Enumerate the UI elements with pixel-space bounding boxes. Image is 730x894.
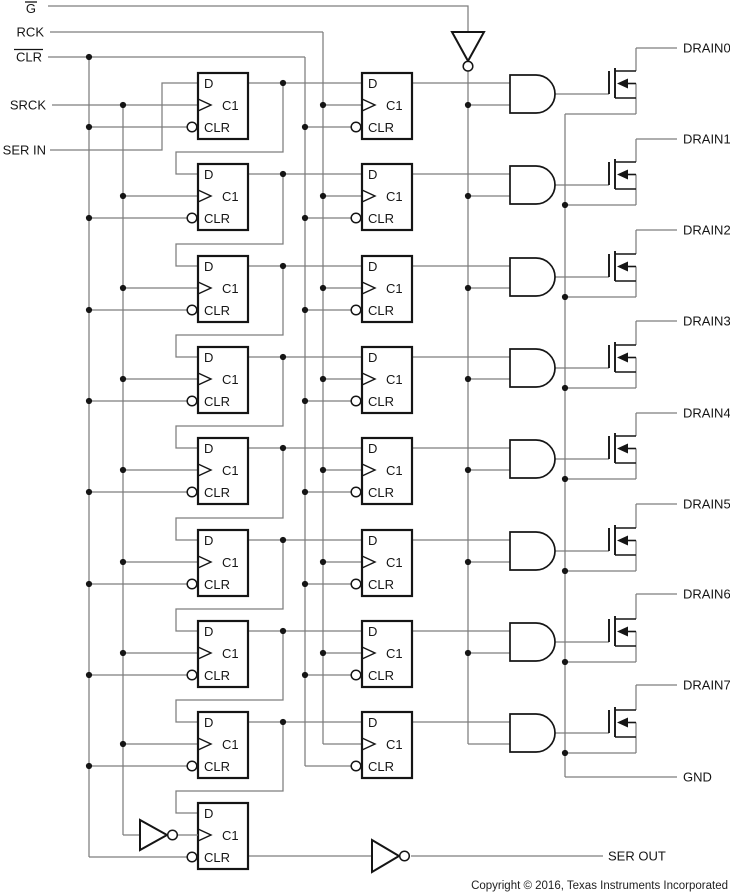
and-gate-4 [510,440,555,478]
junction-dot [120,559,126,565]
junction-dot [86,124,92,130]
clr-bubble-icon [351,487,361,497]
clr-bubble-icon [187,122,197,132]
clr-bubble-icon [187,852,197,862]
g-inverter-bubble-icon [463,61,473,71]
junction-dot [320,650,326,656]
ff-d-label: D [368,76,377,91]
ff-d-label: D [204,806,213,821]
ff-clear-label: CLR [204,668,230,683]
junction-dot [280,719,286,725]
junction-dot [320,467,326,473]
clr-bubble-icon [351,761,361,771]
junction-dot [320,285,326,291]
junction-dot [302,581,308,587]
ser-out-inverter-icon [372,840,399,872]
ff-clock-label: C1 [386,372,403,387]
clr-bubble-icon [187,670,197,680]
junction-dot [120,467,126,473]
ff-clock-label: C1 [222,372,239,387]
clr-bubble-icon [187,487,197,497]
logic-diagram: DC1CLRDC1CLRDC1CLRDC1CLRDC1CLRDC1CLRDC1C… [0,0,730,894]
junction-dot [465,193,471,199]
junction-dot [120,285,126,291]
ff-clear-label: CLR [368,485,394,500]
junction-dot [280,263,286,269]
ff-d-label: D [368,624,377,639]
junction-dot [465,559,471,565]
input-label-g: G [26,1,36,16]
junction-dot [320,559,326,565]
ff-d-label: D [204,167,213,182]
ff-clear-label: CLR [204,303,230,318]
ff-clear-label: CLR [368,577,394,592]
junction-dot [302,215,308,221]
clr-bubble-icon [351,305,361,315]
ff-d-label: D [368,533,377,548]
junction-dot [320,193,326,199]
junction-dot [280,354,286,360]
drain-label-3: DRAIN3 [683,314,730,329]
ff-clock-label: C1 [222,463,239,478]
mosfet-body-arrow-icon [617,627,628,637]
junction-dot [320,376,326,382]
ser-out-inverter-bubble-icon [400,851,410,861]
ser-in-wire [50,83,198,150]
drain-label-1: DRAIN1 [683,132,730,147]
and-gate-0 [510,75,555,113]
junction-dot [465,376,471,382]
ff-clock-label: C1 [386,646,403,661]
ff-clear-label: CLR [368,303,394,318]
ff-d-label: D [204,441,213,456]
junction-dot [280,445,286,451]
junction-dot [86,763,92,769]
junction-dot [280,171,286,177]
ff-clock-label: C1 [222,555,239,570]
mosfet-body-arrow-icon [617,170,628,180]
mosfet-body-arrow-icon [617,353,628,363]
ff-clock-label: C1 [386,463,403,478]
junction-dot [562,202,568,208]
ff-d-label: D [368,441,377,456]
input-label-srck: SRCK [10,98,46,113]
and-gate-3 [510,349,555,387]
clr-bubble-icon [351,579,361,589]
ff-clear-label: CLR [204,211,230,226]
junction-dot [562,385,568,391]
ff-clock-label: C1 [386,737,403,752]
ff-d-label: D [368,259,377,274]
junction-dot [302,124,308,130]
ff-clear-label: CLR [368,394,394,409]
junction-dot [465,102,471,108]
clr-bubble-icon [187,305,197,315]
drain-label-4: DRAIN4 [683,406,730,421]
ff-d-label: D [204,350,213,365]
ff-clock-label: C1 [386,189,403,204]
ff-clock-label: C1 [222,281,239,296]
mosfet-body-arrow-icon [617,536,628,546]
junction-dot [562,294,568,300]
junction-dot [302,398,308,404]
ff-clear-label: CLR [204,577,230,592]
mosfet-body-arrow-icon [617,718,628,728]
g-input-wire [48,6,468,32]
ff-clear-label: CLR [204,759,230,774]
ff-clear-label: CLR [204,120,230,135]
junction-dot [86,581,92,587]
ff-clear-label: CLR [368,668,394,683]
junction-dot [562,659,568,665]
clr-bubble-icon [351,670,361,680]
mosfet-body-arrow-icon [617,79,628,89]
junction-dot [86,54,92,60]
junction-dot [465,650,471,656]
ff-d-label: D [368,715,377,730]
g-inverter-icon [452,32,484,61]
and-gate-1 [510,166,555,204]
junction-dot [86,398,92,404]
ff-d-label: D [204,76,213,91]
drain-label-6: DRAIN6 [683,587,730,602]
clr-bubble-icon [351,396,361,406]
clr-bubble-icon [187,396,197,406]
drain-label-5: DRAIN5 [683,497,730,512]
junction-dot [120,650,126,656]
clock-inverter-bubble-icon [168,830,178,840]
junction-dot [280,628,286,634]
ff-clock-label: C1 [386,281,403,296]
clock-inverter-icon [140,820,167,850]
junction-dot [465,467,471,473]
clr-bubble-icon [187,213,197,223]
ff-clock-label: C1 [222,189,239,204]
junction-dot [302,489,308,495]
junction-dot [120,376,126,382]
input-label-ser-in: SER IN [3,143,46,158]
ff-clock-label: C1 [222,737,239,752]
junction-dot [120,102,126,108]
drain-label-0: DRAIN0 [683,41,730,56]
junction-dot [465,285,471,291]
clr-bubble-icon [187,579,197,589]
input-label-clr: CLR [16,50,42,65]
and-gate-2 [510,258,555,296]
ser-out-label: SER OUT [608,849,666,864]
junction-dot [320,102,326,108]
gnd-label: GND [683,770,712,785]
junction-dot [302,672,308,678]
input-label-rck: RCK [17,25,45,40]
drain-label-7: DRAIN7 [683,678,730,693]
junction-dot [280,80,286,86]
ff-d-label: D [368,350,377,365]
junction-dot [86,489,92,495]
ff-clock-label: C1 [222,646,239,661]
ff-clock-label: C1 [222,828,239,843]
junction-dot [120,741,126,747]
copyright-text: Copyright © 2016, Texas Instruments Inco… [471,880,728,892]
and-gate-6 [510,623,555,661]
junction-dot [86,672,92,678]
ff-clear-label: CLR [204,850,230,865]
junction-dot [562,476,568,482]
ff-clock-label: C1 [222,98,239,113]
junction-dot [86,215,92,221]
ff-clear-label: CLR [368,120,394,135]
junction-dot [562,568,568,574]
junction-dot [562,750,568,756]
and-gate-5 [510,532,555,570]
ff-clock-label: C1 [386,98,403,113]
clr-bubble-icon [351,213,361,223]
schematic-canvas: DC1CLRDC1CLRDC1CLRDC1CLRDC1CLRDC1CLRDC1C… [0,0,730,894]
ff-d-label: D [204,259,213,274]
ff-d-label: D [204,624,213,639]
ff-d-label: D [204,533,213,548]
mosfet-body-arrow-icon [617,444,628,454]
ff-d-label: D [368,167,377,182]
junction-dot [120,193,126,199]
junction-dot [302,307,308,313]
ff-clear-label: CLR [204,394,230,409]
drain-label-2: DRAIN2 [683,223,730,238]
ff-d-label: D [204,715,213,730]
ff-clock-label: C1 [386,555,403,570]
ff-clear-label: CLR [204,485,230,500]
and-gate-7 [510,714,555,752]
mosfet-body-arrow-icon [617,262,628,272]
clr-bubble-icon [351,122,361,132]
ff-clear-label: CLR [368,759,394,774]
junction-dot [280,537,286,543]
ff-clear-label: CLR [368,211,394,226]
clr-bubble-icon [187,761,197,771]
junction-dot [86,307,92,313]
